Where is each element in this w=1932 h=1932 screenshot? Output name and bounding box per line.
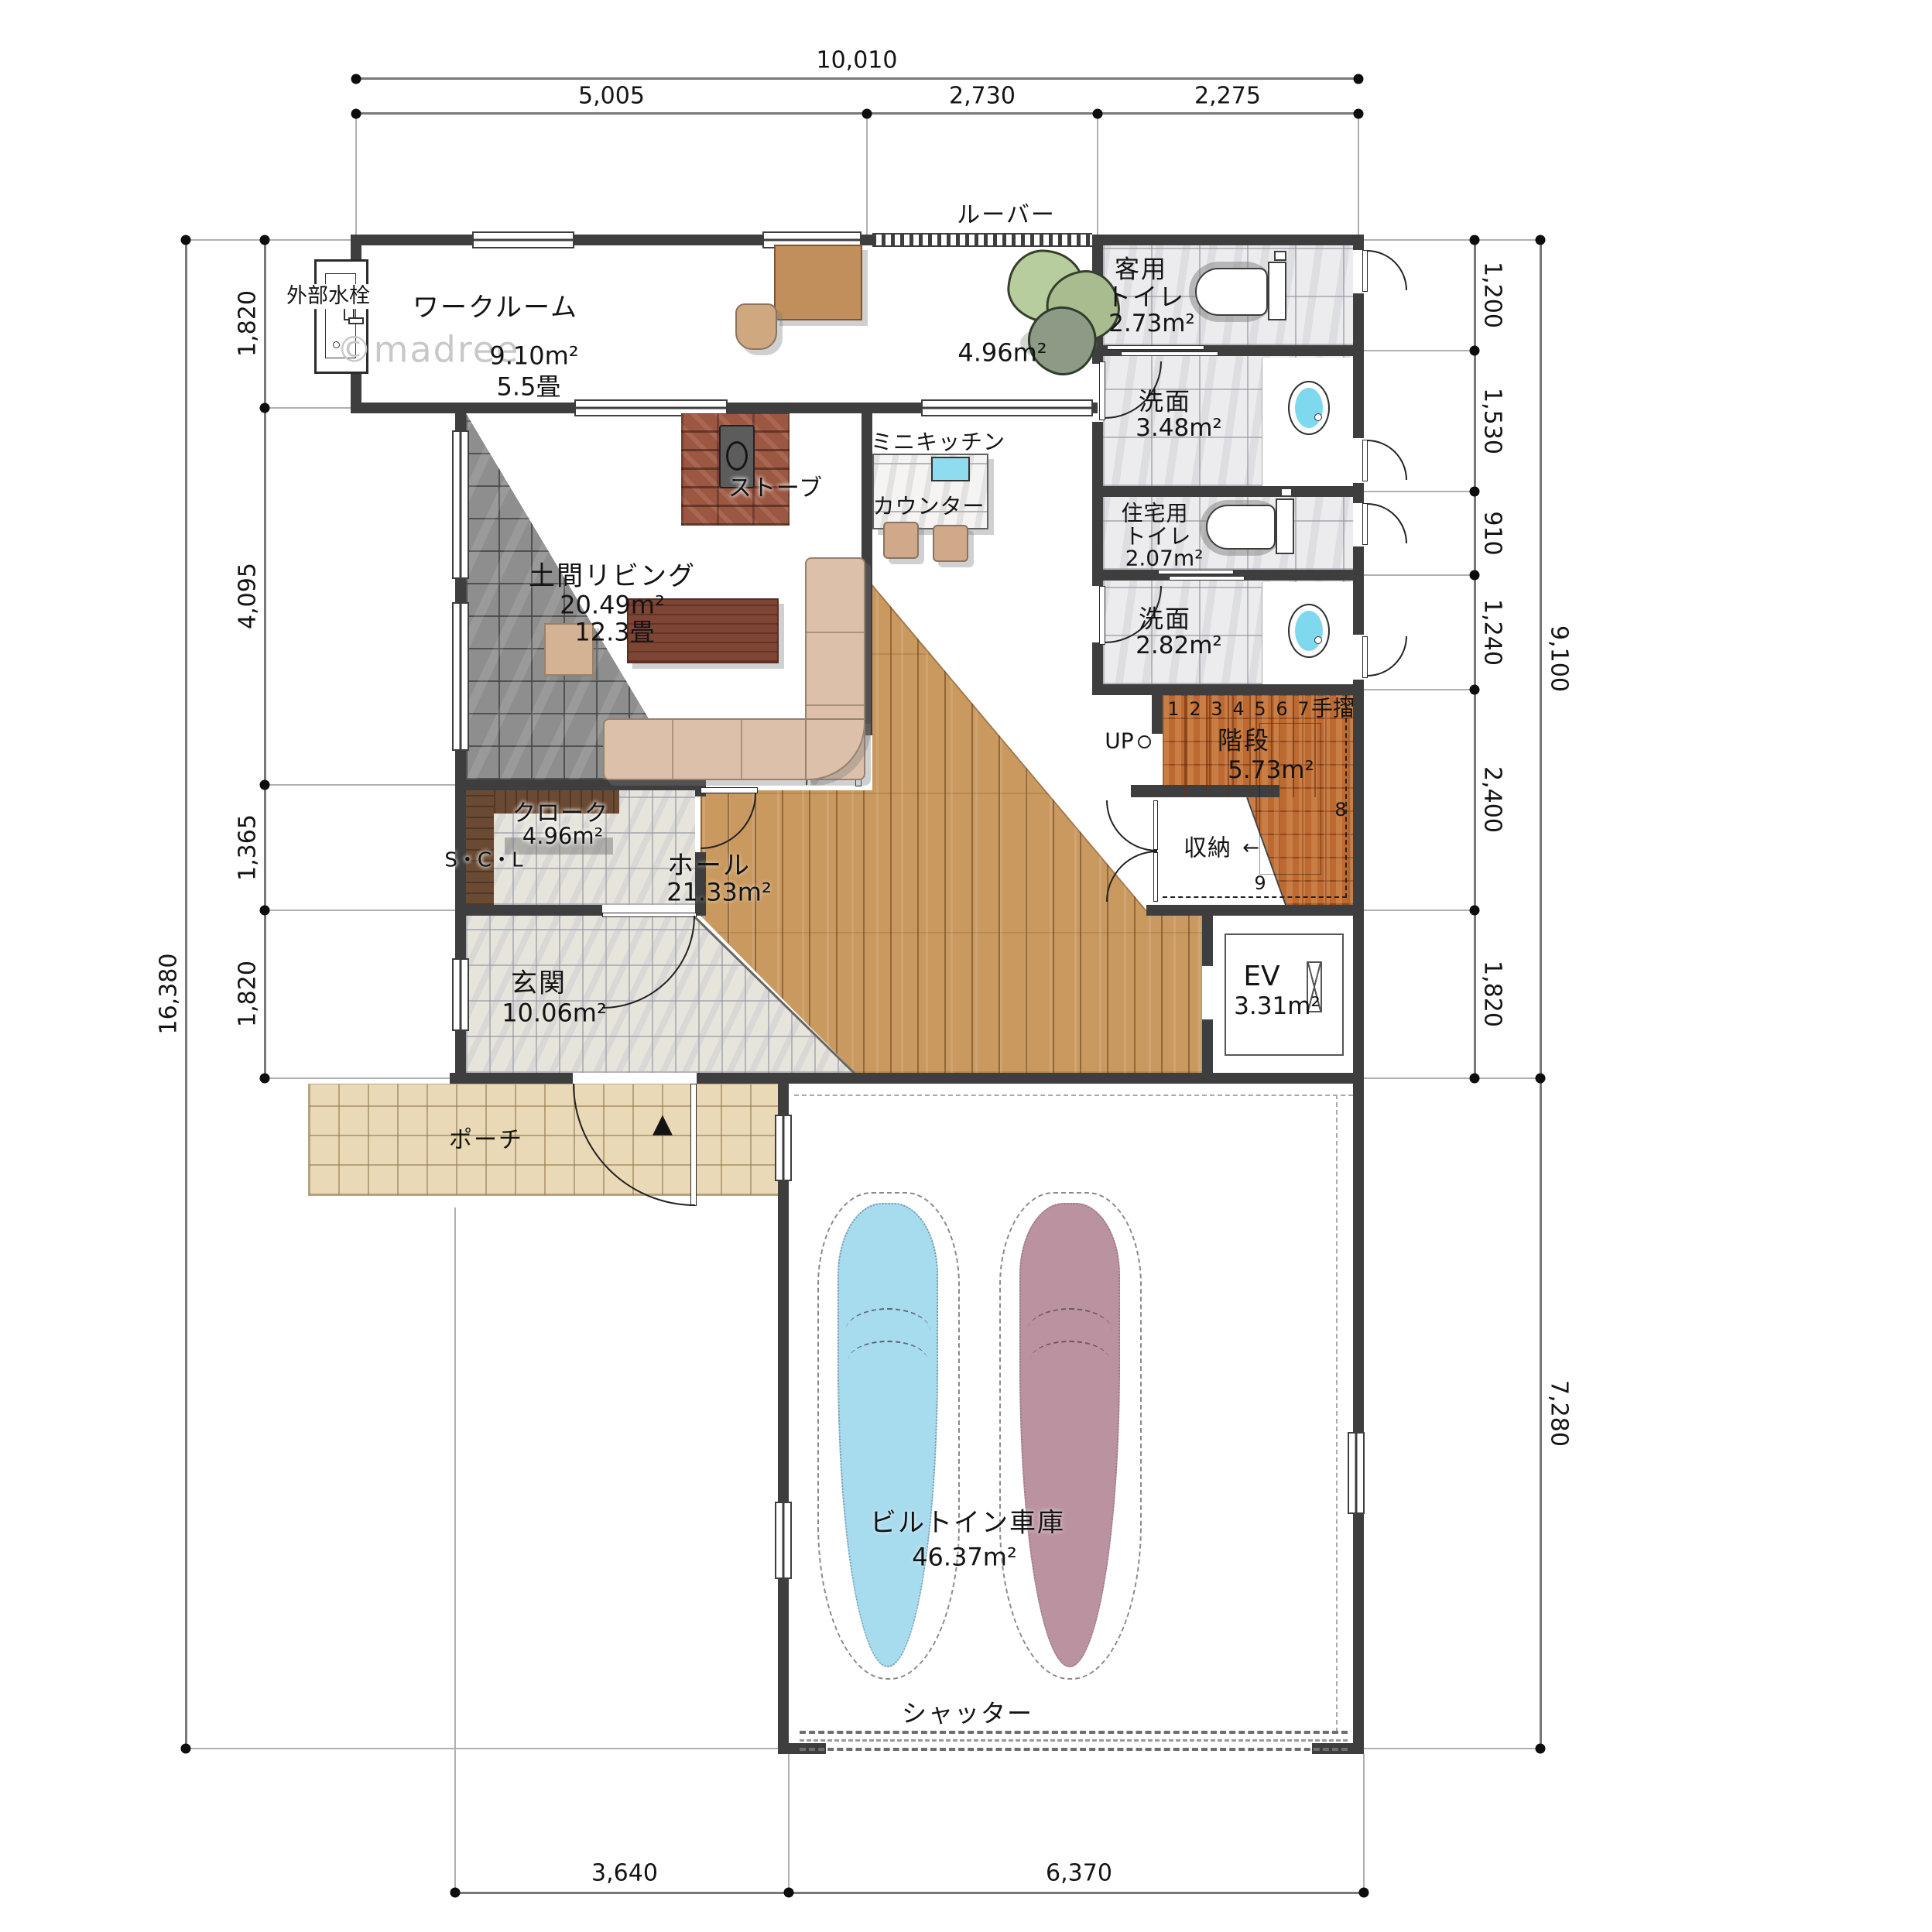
dim-top-2: 2,275 bbox=[1194, 84, 1261, 109]
dim-line-right-segments bbox=[1474, 240, 1476, 1078]
dim-top-0: 5,005 bbox=[578, 84, 645, 109]
dimension-dot bbox=[1470, 906, 1480, 916]
faucet-icon bbox=[348, 317, 364, 324]
sofa-seam bbox=[741, 720, 742, 779]
window bbox=[472, 231, 574, 248]
up-circle bbox=[1138, 735, 1151, 748]
label-storage: 収納 bbox=[1184, 836, 1231, 862]
window bbox=[775, 1115, 792, 1181]
car-windshield-line bbox=[1030, 1341, 1109, 1379]
room-label-washroom1: 洗面 bbox=[1139, 388, 1191, 415]
sofa-seam bbox=[807, 632, 864, 633]
dim-left-total: 16,380 bbox=[156, 954, 182, 1035]
car-windshield-line bbox=[848, 1341, 927, 1379]
dimension-dot bbox=[260, 403, 270, 413]
stair-number-8: 8 bbox=[1334, 800, 1346, 820]
wall bbox=[1202, 905, 1213, 964]
extension-line bbox=[788, 1754, 790, 1893]
stair-number: 1 bbox=[1167, 699, 1179, 719]
toilet-button bbox=[1280, 488, 1293, 497]
louver-strip bbox=[872, 233, 1092, 247]
dim-top-1: 2,730 bbox=[949, 84, 1016, 109]
extension-line bbox=[1364, 574, 1475, 576]
window bbox=[921, 399, 1093, 416]
tatami-label-workroom: 5.5畳 bbox=[497, 373, 561, 400]
dimension-dot bbox=[1354, 109, 1364, 119]
dim-right-upper-total: 9,100 bbox=[1547, 625, 1572, 692]
washbasin-drain bbox=[1314, 636, 1322, 644]
room-label-living: 土間リビング bbox=[529, 562, 696, 591]
extension-line bbox=[1364, 909, 1475, 911]
elevator-door-gap bbox=[1202, 964, 1213, 1021]
door-swing-arc bbox=[1367, 250, 1407, 290]
extension-line bbox=[1364, 239, 1540, 241]
room-label-ev: EV bbox=[1243, 961, 1279, 992]
extension-line bbox=[1364, 491, 1475, 492]
room-label-stairs: 階段 bbox=[1218, 727, 1270, 754]
wall bbox=[1092, 684, 1364, 695]
room-label-guest-toilet-1: 客用 bbox=[1115, 255, 1167, 283]
washbasin bbox=[1288, 381, 1330, 435]
dim-line-left-segments bbox=[264, 240, 266, 1078]
extension-line bbox=[355, 114, 357, 235]
label-exterior-faucet: 外部水栓 bbox=[285, 284, 372, 309]
area-label-stairs: 5.73m² bbox=[1228, 757, 1314, 783]
dimension-dot bbox=[1470, 487, 1480, 497]
dimension-dot bbox=[1470, 235, 1480, 245]
area-label-workroom: 9.10m² bbox=[489, 342, 578, 369]
dim-left-1: 4,095 bbox=[235, 563, 261, 629]
dimension-dot bbox=[260, 1074, 270, 1084]
wall bbox=[1152, 684, 1163, 734]
dimension-dot bbox=[260, 235, 270, 245]
entrance-direction-arrow: ▲ bbox=[653, 1109, 673, 1138]
dimension-dot bbox=[1359, 1888, 1369, 1898]
extension-line bbox=[186, 1748, 789, 1749]
extension-line bbox=[1358, 114, 1359, 235]
stair-number: 7 bbox=[1297, 699, 1309, 719]
floor-plan: ©madree ワークルーム 9.10m² 5.5畳 ルーバー 外部水栓 4.9… bbox=[0, 0, 1932, 1932]
area-label-home-toilet: 2.07m² bbox=[1125, 547, 1204, 571]
room-label-garage: ビルトイン車庫 bbox=[870, 1509, 1065, 1537]
area-label-hall: 21.33m² bbox=[666, 879, 772, 906]
shutter-line bbox=[800, 1731, 1348, 1734]
door-leaf bbox=[701, 787, 758, 793]
sofa-seam bbox=[807, 704, 864, 706]
counter-chair bbox=[883, 522, 919, 559]
storage-arrow: ← bbox=[1242, 838, 1259, 860]
room-label-entrance: 玄関 bbox=[511, 969, 567, 998]
extension-line bbox=[866, 114, 868, 235]
area-label-guest-toilet: 2.73m² bbox=[1108, 310, 1195, 337]
dim-bottom-1: 6,370 bbox=[1046, 1861, 1112, 1886]
extension-line bbox=[1364, 1077, 1540, 1079]
window bbox=[452, 958, 469, 1031]
label-stove: ストーブ bbox=[728, 476, 823, 502]
door-swing-arc bbox=[1367, 440, 1407, 480]
stair-number: 4 bbox=[1232, 699, 1244, 719]
extension-line bbox=[1097, 114, 1098, 235]
dimension-dot bbox=[784, 1888, 794, 1898]
dimension-dot bbox=[1093, 109, 1103, 119]
kitchen-sink bbox=[931, 457, 970, 481]
dimension-dot bbox=[351, 109, 361, 119]
toilet-bowl bbox=[1195, 268, 1268, 316]
toilet-tank bbox=[1276, 498, 1294, 554]
area-label-garage: 46.37m² bbox=[912, 1543, 1017, 1571]
wall bbox=[1092, 422, 1103, 586]
stair-number: 2 bbox=[1189, 699, 1201, 719]
room-label-home-toilet-1: 住宅用 bbox=[1121, 502, 1188, 526]
garage-dashed-outline bbox=[1336, 1094, 1338, 1732]
room-label-workroom: ワークルーム bbox=[413, 293, 578, 322]
shutter-line bbox=[800, 1739, 1348, 1742]
dimension-dot bbox=[260, 780, 270, 790]
area-label-cloak: 4.96m² bbox=[522, 824, 603, 849]
dimension-dot bbox=[260, 906, 270, 916]
toilet-button bbox=[1274, 251, 1286, 261]
porch-tile bbox=[308, 1084, 783, 1196]
dim-line-left-total bbox=[185, 240, 187, 1749]
wall bbox=[455, 779, 701, 790]
dim-line-top-total bbox=[356, 77, 1358, 80]
wall bbox=[697, 1073, 1364, 1084]
dimension-dot bbox=[181, 1744, 191, 1754]
dim-right-0: 1,200 bbox=[1480, 262, 1506, 328]
dim-right-1: 1,530 bbox=[1480, 388, 1506, 454]
extension-line bbox=[454, 1207, 456, 1893]
label-scl: S・C・L bbox=[444, 850, 522, 872]
door-swing-arc bbox=[1106, 800, 1157, 851]
dimension-dot bbox=[1470, 570, 1480, 581]
dim-right-3: 1,240 bbox=[1480, 599, 1506, 666]
dim-right-4: 2,400 bbox=[1480, 766, 1506, 833]
dim-left-3: 1,820 bbox=[235, 961, 261, 1027]
garage-dashed-outline bbox=[794, 1094, 1353, 1096]
wall bbox=[1092, 486, 1364, 497]
dim-right-2: 910 bbox=[1480, 511, 1506, 555]
label-porch: ポーチ bbox=[449, 1128, 523, 1153]
extension-line bbox=[1364, 689, 1475, 690]
wall bbox=[1146, 905, 1364, 916]
dim-right-5: 1,820 bbox=[1480, 961, 1506, 1027]
dimension-dot bbox=[181, 235, 191, 245]
label-up: UP bbox=[1105, 730, 1133, 754]
door-swing-arc bbox=[1367, 503, 1407, 543]
area-label-living: 20.49m² bbox=[560, 591, 665, 618]
dim-bottom-0: 3,640 bbox=[591, 1861, 658, 1886]
sliding-door bbox=[1121, 351, 1218, 356]
label-counter: カウンター bbox=[872, 495, 985, 519]
label-mini-kitchen: ミニキッチン bbox=[871, 431, 1005, 455]
dimension-dot bbox=[1536, 1744, 1546, 1754]
dim-line-right-total bbox=[1540, 240, 1542, 1749]
extension-line bbox=[1364, 1748, 1540, 1749]
wall bbox=[1092, 235, 1364, 245]
dimension-dot bbox=[1470, 685, 1480, 695]
dimension-dot bbox=[1354, 74, 1364, 84]
stair-number: 3 bbox=[1211, 699, 1222, 719]
dimension-dot bbox=[1470, 346, 1480, 356]
stove-ring bbox=[726, 441, 748, 471]
dim-line-bottom bbox=[455, 1892, 1364, 1894]
area-label-washroom1: 3.48m² bbox=[1136, 415, 1222, 441]
dim-left-0: 1,820 bbox=[235, 290, 261, 357]
extension-line bbox=[265, 784, 455, 786]
shutter-line bbox=[800, 1748, 1348, 1751]
area-label-washroom2: 2.82m² bbox=[1136, 632, 1222, 659]
extension-line bbox=[1364, 350, 1475, 351]
dimension-dot bbox=[1536, 1074, 1546, 1084]
stair-number-9: 9 bbox=[1254, 873, 1266, 893]
label-louver: ルーバー bbox=[957, 203, 1056, 228]
desk-chair bbox=[735, 303, 777, 350]
area-label-ev: 3.31m² bbox=[1234, 993, 1321, 1019]
washbasin bbox=[1288, 604, 1330, 658]
garage-side-door bbox=[1348, 1432, 1365, 1514]
extension-line bbox=[186, 239, 356, 241]
dim-right-lower-total: 7,280 bbox=[1547, 1380, 1572, 1447]
counter-chair bbox=[933, 525, 968, 562]
extension-line bbox=[265, 909, 455, 911]
desk bbox=[774, 245, 862, 320]
dimension-dot bbox=[1536, 235, 1546, 245]
toilet-bowl bbox=[1206, 505, 1276, 550]
area-label-entrance: 10.06m² bbox=[502, 999, 607, 1026]
dim-left-2: 1,365 bbox=[235, 814, 261, 881]
tatami-label-living: 12.3畳 bbox=[574, 618, 654, 646]
dim-top-total: 10,010 bbox=[817, 48, 898, 74]
door-swing-arc bbox=[1367, 636, 1407, 677]
area-label-terrace: 4.96m² bbox=[957, 339, 1046, 366]
dimension-dot bbox=[862, 109, 872, 119]
room-label-washroom2: 洗面 bbox=[1139, 605, 1191, 632]
dimension-dot bbox=[450, 1888, 461, 1898]
stair-number: 5 bbox=[1254, 699, 1266, 719]
stair-tread-line bbox=[1184, 695, 1186, 797]
window bbox=[775, 1502, 792, 1579]
counter-edge-line bbox=[874, 463, 987, 464]
window bbox=[452, 430, 469, 579]
door-swing-arc bbox=[1106, 851, 1157, 902]
label-shutter: シャッター bbox=[902, 1700, 1033, 1727]
sliding-door bbox=[1169, 576, 1245, 581]
washbasin-drain bbox=[1314, 413, 1322, 421]
label-handrail: 手摺 bbox=[1311, 697, 1355, 721]
toilet-tank bbox=[1268, 262, 1286, 320]
sliding-door bbox=[1107, 345, 1204, 350]
room-label-hall: ホール bbox=[667, 851, 751, 880]
dimension-dot bbox=[351, 74, 361, 84]
dimension-dot bbox=[1470, 1074, 1480, 1084]
room-label-guest-toilet-2: トイレ bbox=[1106, 283, 1185, 310]
stair-number: 6 bbox=[1276, 699, 1287, 719]
extension-line bbox=[265, 1077, 455, 1079]
sofa-horizontal bbox=[603, 718, 814, 780]
dim-line-top-segments bbox=[356, 112, 1358, 115]
wall bbox=[450, 1073, 573, 1084]
stair-tread-line bbox=[1206, 695, 1207, 797]
sofa-seam bbox=[672, 720, 673, 779]
cloak-shelf bbox=[466, 790, 494, 905]
wall bbox=[455, 905, 602, 916]
window bbox=[452, 602, 469, 751]
extension-line bbox=[1363, 1754, 1365, 1893]
